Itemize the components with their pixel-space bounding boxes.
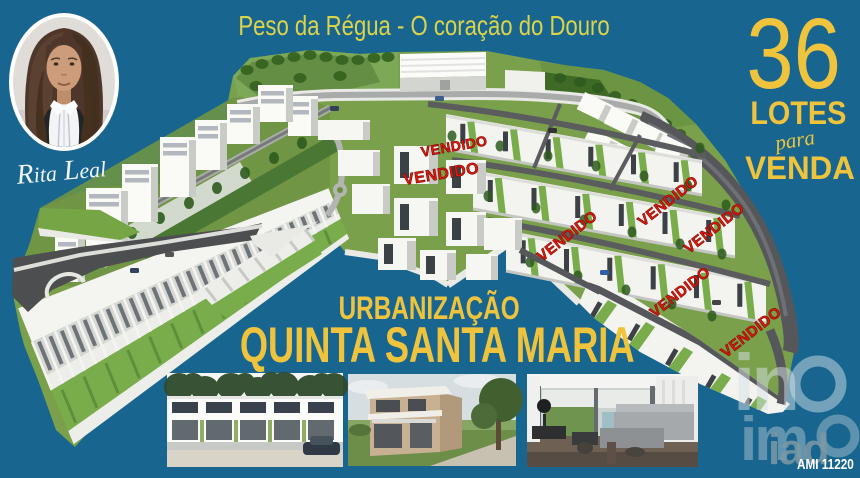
svg-text:Rita Leal: Rita Leal bbox=[14, 152, 107, 191]
